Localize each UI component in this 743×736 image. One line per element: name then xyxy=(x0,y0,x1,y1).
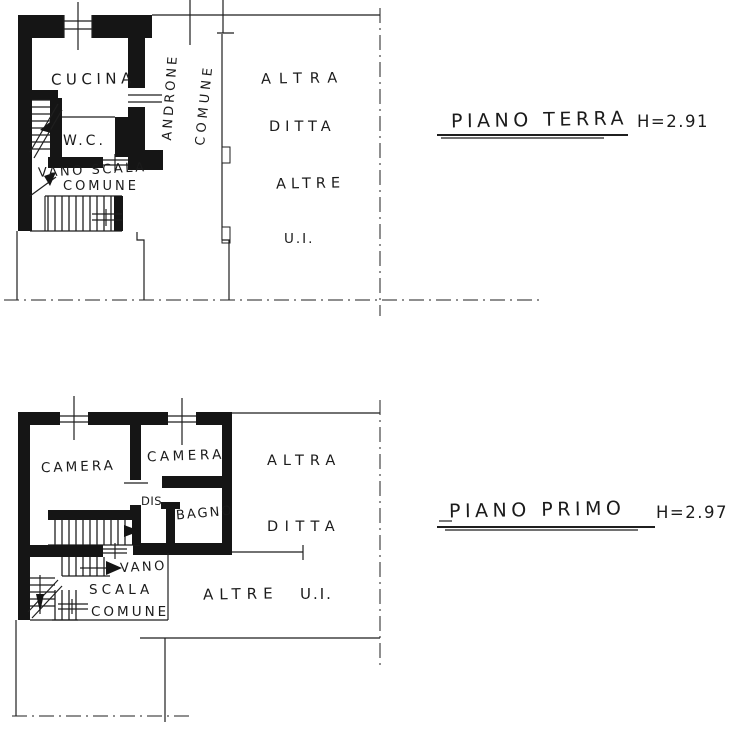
zone-label-altre-primo: ALTRE xyxy=(203,586,279,602)
room-label-vano-scala-line2: COMUNE xyxy=(63,180,139,193)
zone-label-ui-terra: U.I. xyxy=(284,233,314,247)
zone-label-ditta-terra: DITTA xyxy=(269,120,336,135)
terra-title-underline xyxy=(437,135,628,138)
zone-label-altra-primo: ALTRA xyxy=(267,454,341,469)
floor-title-terra: PIANO TERRA xyxy=(451,109,628,131)
zone-label-ui-primo: U.I. xyxy=(300,587,333,602)
zone-label-altre-terra: ALTRE xyxy=(276,176,345,192)
room-label-comune: COMUNE xyxy=(91,606,169,620)
room-label-dis: DIS. xyxy=(141,496,166,508)
room-label-wc: W.C. xyxy=(63,134,106,148)
floor-height-terra: H=2.91 xyxy=(637,114,709,131)
room-label-vano: VANO xyxy=(120,560,168,575)
room-label-camera-2: CAMERA xyxy=(147,449,225,465)
room-label-cucina: CUCINA xyxy=(51,71,136,87)
floor-title-primo: PIANO PRIMO xyxy=(449,499,626,521)
room-label-camera-1: CAMERA xyxy=(41,460,116,476)
room-label-scala: SCALA xyxy=(89,584,153,598)
zone-label-altra-terra: ALTRA xyxy=(261,71,346,87)
floor-plan-page: CUCINA W.C. VANO SCALA COMUNE ANDRONE CO… xyxy=(0,0,743,736)
primo-title-underline xyxy=(437,527,655,530)
zone-label-ditta-primo: DITTA xyxy=(267,520,341,535)
floorplan-linework-svg xyxy=(0,0,743,736)
floor-height-primo: H=2.97 xyxy=(656,505,728,522)
